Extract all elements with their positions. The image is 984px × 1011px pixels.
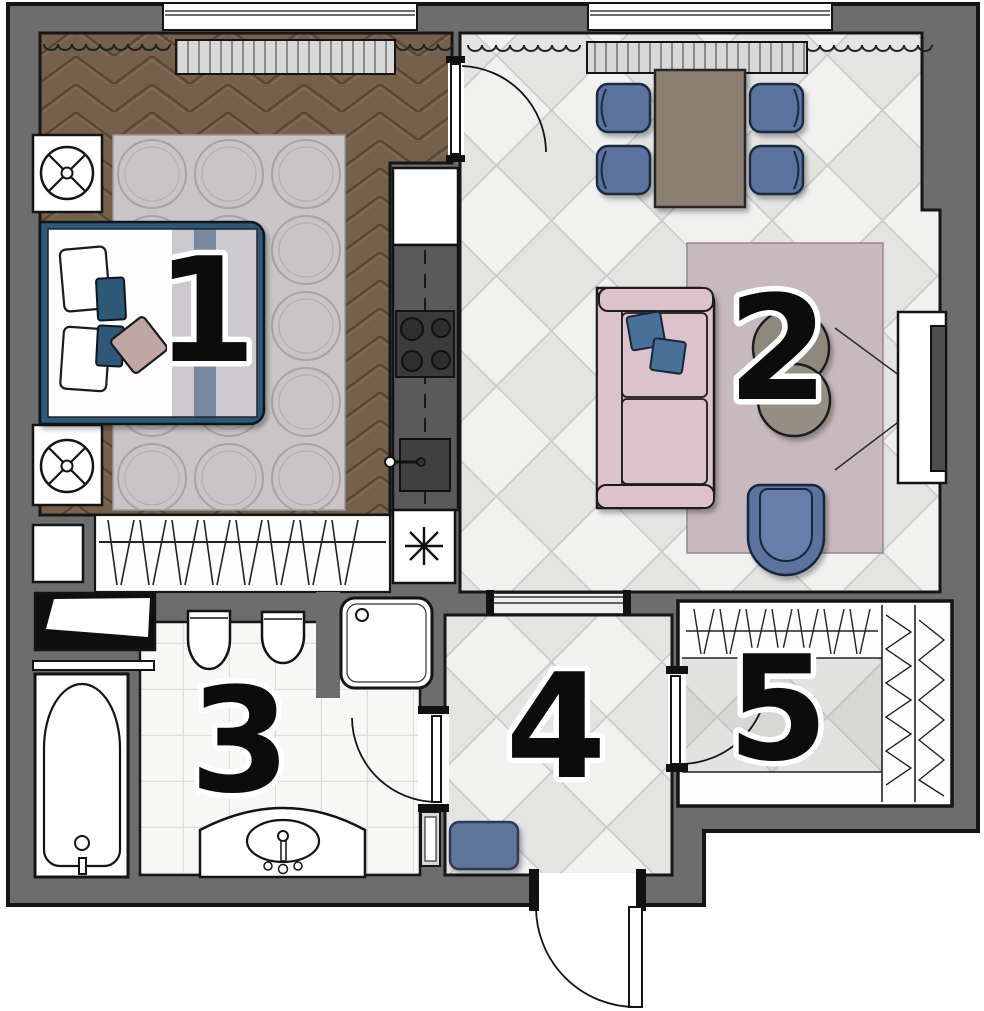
radiator-living xyxy=(587,42,807,73)
room-label-3: 3 xyxy=(190,657,291,826)
shower xyxy=(341,598,432,688)
radiator-bedroom xyxy=(176,40,395,74)
dining-chair xyxy=(597,84,650,132)
stove-icon xyxy=(396,311,454,377)
wall-patch-shower xyxy=(316,592,340,698)
floor-plan: 1 2 3 4 5 xyxy=(0,0,984,1011)
dining-table xyxy=(655,70,745,207)
fridge-freezer-icon xyxy=(393,510,455,583)
sofa-pillow xyxy=(650,338,686,374)
sofa xyxy=(597,288,714,508)
room-label-5: 5 xyxy=(728,625,829,794)
window-living xyxy=(588,3,832,30)
vent-niche-bottom xyxy=(33,425,102,505)
towel-rail xyxy=(421,812,440,866)
toilet xyxy=(262,612,304,663)
vent-fan-icon xyxy=(41,440,93,492)
kitchen-block xyxy=(385,168,458,583)
shelf xyxy=(33,661,154,670)
room-label-1: 1 xyxy=(156,227,257,396)
wardrobe-closet xyxy=(95,515,390,592)
tv-screen xyxy=(931,326,946,471)
vent-niche-top xyxy=(33,135,102,212)
vent-fan-icon xyxy=(41,147,93,199)
doormat xyxy=(450,822,518,869)
dining-chair xyxy=(750,84,803,132)
armchair xyxy=(748,485,824,575)
room-label-2: 2 xyxy=(728,265,829,434)
shower-drain xyxy=(356,609,368,621)
washing-machine xyxy=(35,593,155,650)
kitchen-upper-cabinet xyxy=(393,168,458,245)
blue-pillow xyxy=(96,277,126,320)
room-label-4: 4 xyxy=(506,643,607,812)
floor-plan-svg: 1 2 3 4 5 xyxy=(0,0,984,1011)
dining-chair xyxy=(750,146,803,194)
storage-niche xyxy=(33,525,83,582)
door-entry xyxy=(529,869,646,1007)
dining-chair xyxy=(597,146,650,194)
bathtub xyxy=(35,674,128,877)
snowflake-icon xyxy=(405,527,443,565)
window-bedroom xyxy=(163,3,417,30)
